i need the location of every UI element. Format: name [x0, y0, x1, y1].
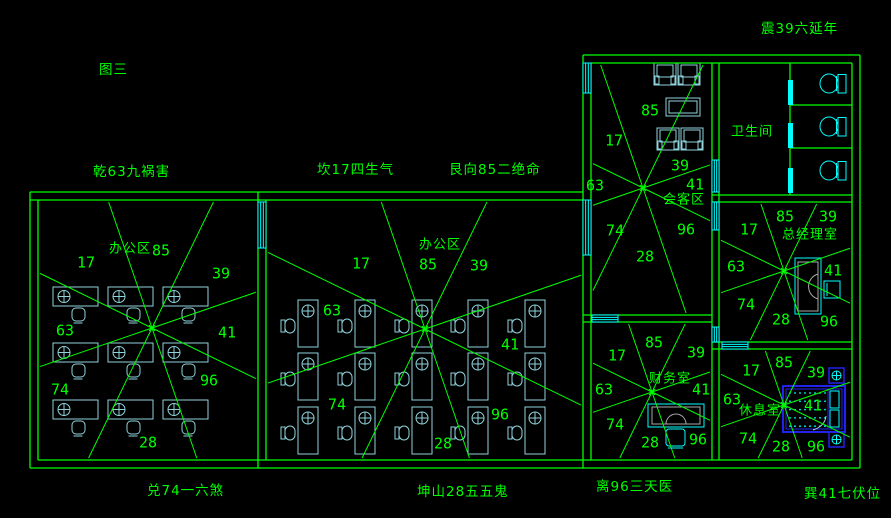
sector-number: 74 [51, 381, 69, 399]
desk-v [525, 300, 545, 347]
chair-side [281, 426, 295, 440]
chair-side [451, 372, 465, 386]
room-label-office-left: 办公区 [109, 242, 151, 257]
sector-number: 96 [491, 406, 509, 424]
room-center-mark [781, 268, 787, 274]
sector-number: 39 [687, 344, 705, 362]
window-symbol [592, 315, 618, 322]
sector-number: 28 [772, 438, 790, 456]
desk-h [163, 400, 208, 419]
room-label-manager-room: 总经理室 [782, 227, 838, 243]
window-symbol [583, 63, 591, 93]
label-li-tianyi: 离96三天医 [596, 475, 673, 495]
sector-number: 28 [641, 434, 659, 452]
desk-v [298, 407, 318, 454]
desk-h [53, 400, 98, 419]
label-qian-huohai: 乾63九祸害 [93, 160, 170, 180]
sector-number: 17 [740, 221, 758, 239]
figure-title: 图三 [99, 58, 128, 78]
sector-number: 96 [689, 431, 707, 449]
label-gen-jueming: 艮向85二绝命 [449, 158, 541, 178]
nightstand [829, 432, 844, 447]
nightstand [829, 368, 844, 383]
sector-number: 39 [212, 265, 230, 283]
sector-number: 63 [727, 258, 745, 276]
desk-v [355, 300, 375, 347]
sector-number: 85 [776, 208, 794, 226]
sector-number: 41 [824, 262, 842, 280]
window-symbol [722, 342, 748, 349]
room-center-mark [149, 325, 155, 331]
fin-desk [648, 404, 704, 427]
floorplan-drawing: 1785396341749628办公区1785396341749628办公区85… [0, 0, 891, 518]
window-symbol [788, 123, 793, 148]
chair-side [395, 426, 409, 440]
label-kan-shengqi: 坎17四生气 [317, 158, 394, 178]
room-label-meeting-room: 会客区 [663, 192, 705, 208]
sector-number: 63 [56, 322, 74, 340]
sector-number: 85 [152, 242, 170, 260]
sector-ray [268, 252, 425, 329]
window-symbol [712, 160, 719, 192]
sector-number: 96 [807, 438, 825, 456]
sector-number: 85 [641, 102, 659, 120]
room-center-mark [640, 185, 646, 191]
sector-number: 41 [804, 397, 822, 415]
sector-number: 39 [671, 157, 689, 175]
chair-side [338, 319, 352, 333]
room-label-office-mid: 办公区 [419, 238, 461, 253]
chair-side [338, 372, 352, 386]
desk-v [525, 407, 545, 454]
armchair [681, 128, 703, 150]
sector-ray [268, 329, 425, 383]
chair-front [72, 421, 85, 436]
sector-number: 74 [606, 416, 624, 434]
fin-chair [666, 429, 685, 448]
armchair [657, 128, 679, 150]
sector-number: 63 [595, 381, 613, 399]
sector-number: 17 [608, 347, 626, 365]
window-symbol [583, 200, 591, 255]
desk-h [108, 343, 153, 362]
armchair [654, 63, 676, 85]
window-symbol [258, 202, 266, 248]
armchair [678, 63, 700, 85]
toilet [820, 74, 846, 93]
desk-h [108, 400, 153, 419]
sector-number: 28 [434, 435, 452, 453]
room-label-rest-room: 休息室 [739, 403, 781, 419]
label-xun-fuwei: 巽41七伏位 [804, 482, 881, 502]
exec-chair [824, 281, 840, 298]
room-center-mark [649, 389, 655, 395]
chair-side [451, 319, 465, 333]
label-dui-liusha: 兑74一六煞 [147, 479, 224, 499]
sector-number: 96 [820, 313, 838, 331]
chair-side [281, 319, 295, 333]
sector-number: 39 [807, 364, 825, 382]
sector-number: 41 [218, 324, 236, 342]
chair-side [508, 372, 522, 386]
sector-number: 74 [606, 222, 624, 240]
sector-ray [425, 275, 581, 329]
sector-number: 74 [328, 396, 346, 414]
label-kun-wugui: 坤山28五五鬼 [417, 480, 509, 500]
chair-side [395, 372, 409, 386]
window-symbol [712, 202, 719, 230]
chair-front [182, 364, 195, 379]
room-label-finance-room: 财务室 [649, 371, 691, 387]
desk-h [108, 287, 153, 306]
sector-number: 39 [470, 257, 488, 275]
chair-side [395, 319, 409, 333]
sector-number: 74 [737, 296, 755, 314]
sector-ray [601, 65, 643, 188]
desk-h [53, 287, 98, 306]
sector-number: 17 [742, 362, 760, 380]
sector-number: 96 [677, 221, 695, 239]
desk-v [298, 300, 318, 347]
sector-number: 17 [77, 254, 95, 272]
sector-number: 28 [139, 434, 157, 452]
sector-number: 17 [605, 132, 623, 150]
sector-ray [362, 329, 425, 458]
sector-number: 41 [692, 381, 710, 399]
sector-number: 17 [352, 255, 370, 273]
sector-number: 41 [501, 336, 519, 354]
sector-number: 63 [323, 302, 341, 320]
sector-number: 28 [636, 248, 654, 266]
desk-h [163, 287, 208, 306]
desk-v [412, 353, 432, 400]
desk-h [53, 343, 98, 362]
sector-number: 39 [819, 208, 837, 226]
desk-v [298, 353, 318, 400]
chair-side [338, 426, 352, 440]
sector-number: 41 [686, 176, 704, 194]
toilet [820, 117, 846, 136]
window-symbol [712, 327, 719, 342]
label-zhen-yannian: 震39六延年 [761, 17, 838, 37]
desk-v [355, 407, 375, 454]
desk-v [355, 353, 375, 400]
room-center-mark [422, 326, 428, 332]
cad-floorplan-canvas: 1785396341749628办公区1785396341749628办公区85… [0, 0, 891, 518]
desk-v [468, 353, 488, 400]
room-text-layer: 1785396341749628办公区1785396341749628办公区85… [51, 102, 842, 456]
desk-v [525, 353, 545, 400]
sector-number: 63 [586, 177, 604, 195]
chair-side [508, 319, 522, 333]
sector-ray [109, 202, 152, 328]
sector-number: 28 [772, 311, 790, 329]
sector-number: 74 [739, 430, 757, 448]
sector-number: 85 [645, 334, 663, 352]
chair-front [72, 364, 85, 379]
desk-v [412, 407, 432, 454]
desk-v [468, 300, 488, 347]
toilet [820, 161, 846, 180]
sector-number: 85 [419, 256, 437, 274]
chair-side [508, 426, 522, 440]
sector-ray [40, 273, 152, 328]
desk-v [468, 407, 488, 454]
window-symbol [788, 80, 793, 105]
sector-number: 85 [775, 354, 793, 372]
window-symbol [788, 168, 793, 193]
room-label-bathroom: 卫生间 [731, 125, 773, 140]
exec-desk [795, 258, 821, 314]
sector-number: 96 [200, 372, 218, 390]
